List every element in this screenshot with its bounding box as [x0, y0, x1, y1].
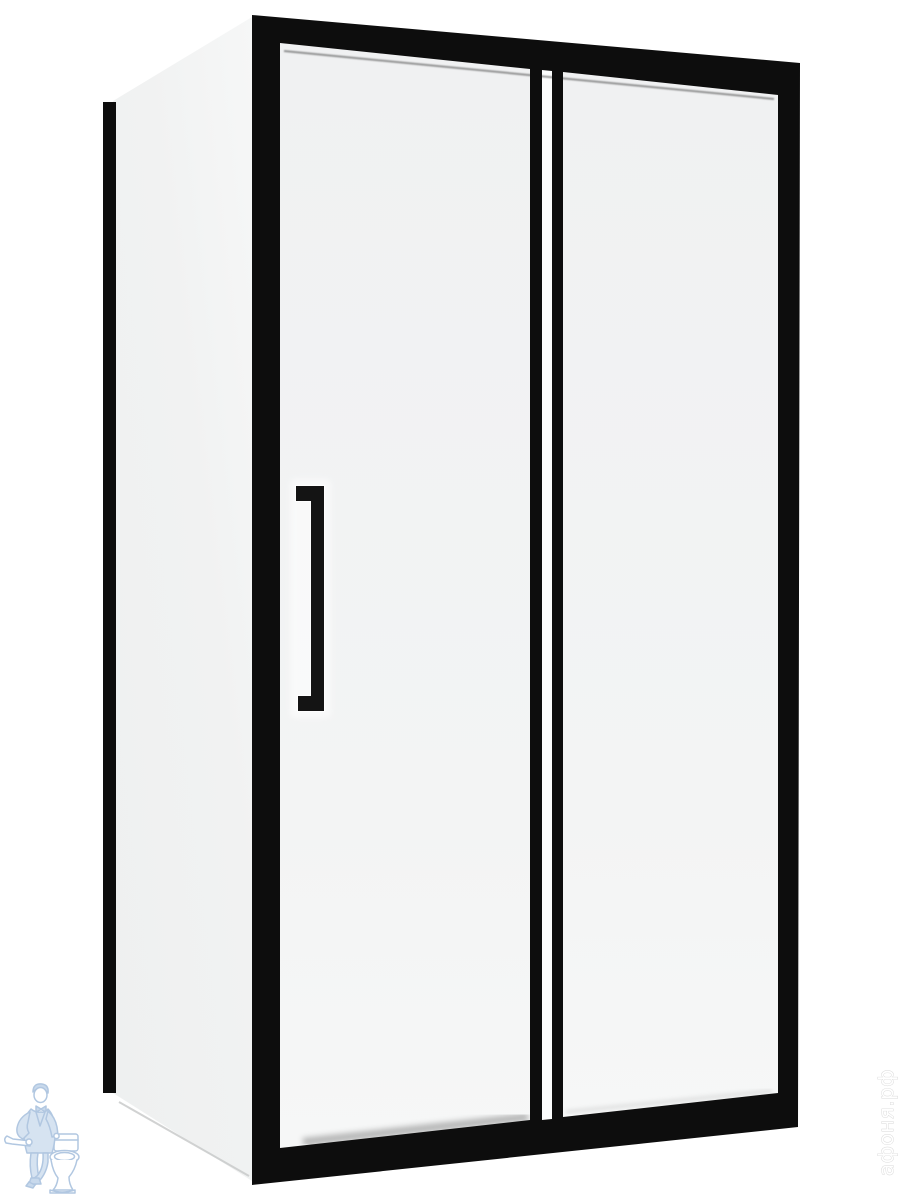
shower-enclosure-illustration: афоня.рф: [0, 0, 900, 1200]
plumber-hand-on-tank: [54, 1133, 59, 1138]
product-photo: афоня.рф: [0, 0, 900, 1200]
wall-profile-bar: [103, 102, 116, 1093]
shower-enclosure: [103, 15, 800, 1185]
side-panel: [103, 17, 252, 1181]
front-panel: [280, 43, 778, 1148]
toilet-pedestal: [51, 1160, 77, 1190]
plumber-hand-wrench: [26, 1139, 32, 1145]
store-watermark-text: афоня.рф: [874, 1069, 898, 1176]
center-overlap-gap: [542, 70, 552, 1120]
plumber-face: [34, 1088, 47, 1103]
door-handle: [290, 479, 331, 718]
plumber-logo-watermark: [5, 1084, 79, 1193]
fixed-glass-right: [563, 72, 778, 1117]
side-glass-panel: [113, 17, 252, 1181]
